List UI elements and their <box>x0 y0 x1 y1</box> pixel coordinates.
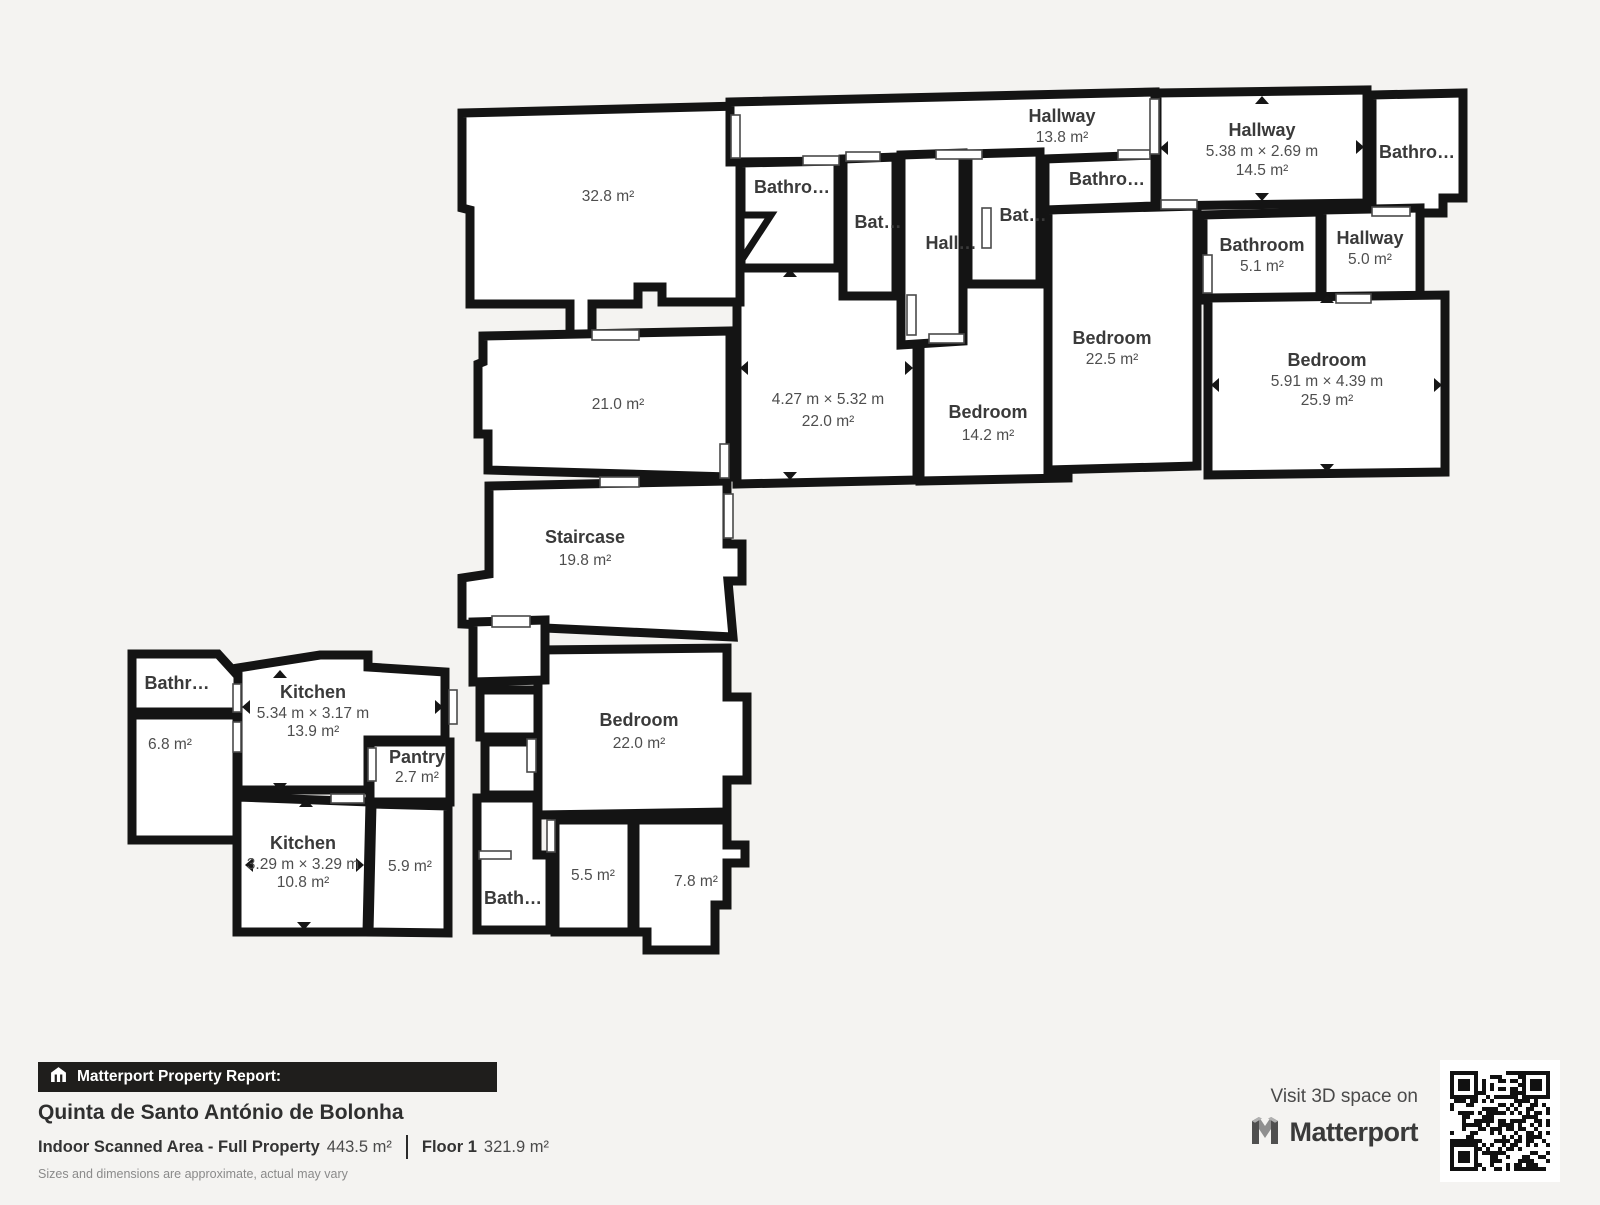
room-6-8-outline <box>132 715 237 840</box>
door <box>331 794 364 803</box>
property-name: Quinta de Santo António de Bolonha <box>38 1101 658 1125</box>
room-label: 3.29 m × 3.29 m <box>247 856 359 873</box>
room-label: Bat… <box>854 212 901 232</box>
room-bedroom-bottom-outline <box>538 648 747 815</box>
door <box>233 722 241 752</box>
room-label: 22.0 m² <box>802 413 855 430</box>
room-label: Bathr… <box>144 673 209 693</box>
room-label: 19.8 m² <box>559 552 612 569</box>
area-info-line: Indoor Scanned Area - Full Property 443.… <box>38 1135 658 1159</box>
qr-code <box>1440 1060 1560 1182</box>
room-label: 5.34 m × 3.17 m <box>257 705 369 722</box>
room-bathroom-5-1-outline <box>1203 212 1320 300</box>
door <box>1161 200 1197 209</box>
floor-value: 321.9 m² <box>484 1138 549 1157</box>
room-label: Pantry <box>389 747 445 767</box>
room-label: 4.27 m × 5.32 m <box>772 391 884 408</box>
report-footer: Matterport Property Report: Quinta de Sa… <box>38 1062 658 1181</box>
room-label: Bedroom <box>599 710 678 730</box>
room-label: 22.5 m² <box>1086 351 1139 368</box>
property-report-icon <box>50 1066 67 1088</box>
divider <box>406 1135 408 1159</box>
door <box>982 208 991 248</box>
matterport-wordmark: Matterport <box>1290 1117 1419 1148</box>
room-label: 6.8 m² <box>148 736 192 753</box>
room-label: Staircase <box>545 527 625 547</box>
room-label: Bedroom <box>948 402 1027 422</box>
room-label: Hallway <box>1228 120 1295 140</box>
door <box>1372 207 1410 216</box>
door <box>803 156 839 165</box>
room-label: Hall… <box>925 233 976 253</box>
scanned-area-label: Indoor Scanned Area - Full Property <box>38 1138 320 1157</box>
door <box>600 477 639 487</box>
door <box>479 851 511 859</box>
disclaimer-text: Sizes and dimensions are approximate, ac… <box>38 1167 658 1181</box>
door <box>547 820 555 852</box>
floor-label: Floor 1 <box>422 1138 477 1157</box>
room-label: Bath… <box>484 888 542 908</box>
room-label: 10.8 m² <box>277 874 330 891</box>
room-label: 25.9 m² <box>1301 392 1354 409</box>
door <box>233 684 241 712</box>
visit-label: Visit 3D space on <box>1249 1086 1419 1108</box>
door <box>1336 294 1371 303</box>
door <box>527 739 536 772</box>
floor-plan: 32.8 m² 21.0 m² Staircase 19.8 m² Hallwa… <box>0 0 1600 1200</box>
room-label: 7.8 m² <box>674 873 718 890</box>
room-label: Hallway <box>1336 228 1403 248</box>
room-label: 5.9 m² <box>388 858 432 875</box>
door <box>1118 150 1150 159</box>
door <box>1203 255 1212 293</box>
door <box>1150 99 1159 154</box>
door <box>724 494 733 538</box>
room-label: 5.1 m² <box>1240 258 1284 275</box>
room-label: Bedroom <box>1072 328 1151 348</box>
room-label: 5.5 m² <box>571 867 615 884</box>
room-label: 14.2 m² <box>962 427 1015 444</box>
door <box>907 295 916 335</box>
room-label: 5.38 m × 2.69 m <box>1206 143 1318 160</box>
room-label: Hallway <box>1028 106 1095 126</box>
room-label: Bathro… <box>754 177 830 197</box>
room-label: 13.9 m² <box>287 723 340 740</box>
vestibule-outline <box>480 690 538 737</box>
room-label: Bat… <box>999 205 1046 225</box>
room-label: 32.8 m² <box>582 188 635 205</box>
room-label: 22.0 m² <box>613 735 666 752</box>
room-label: 21.0 m² <box>592 396 645 413</box>
room-label: 5.0 m² <box>1348 251 1392 268</box>
room-label: Bathro… <box>1379 142 1455 162</box>
room-label: Bathroom <box>1220 235 1305 255</box>
door <box>731 115 740 158</box>
room-label: Kitchen <box>280 682 346 702</box>
vestibule-outline <box>473 620 545 682</box>
door <box>368 748 376 781</box>
door <box>936 150 982 159</box>
room-label: Kitchen <box>270 833 336 853</box>
door <box>592 330 639 340</box>
door <box>846 152 880 161</box>
door <box>492 616 530 627</box>
door <box>929 334 964 343</box>
room-label: 14.5 m² <box>1236 162 1289 179</box>
room-label: Bedroom <box>1287 350 1366 370</box>
matterport-logo-icon <box>1249 1114 1281 1151</box>
room-label: 5.91 m × 4.39 m <box>1271 373 1383 390</box>
report-bar: Matterport Property Report: <box>38 1062 497 1092</box>
room-label: 2.7 m² <box>395 769 439 786</box>
scanned-area-value: 443.5 m² <box>327 1138 392 1157</box>
door <box>449 690 457 724</box>
room-32-8-outline <box>462 106 740 336</box>
visit-3d-cta[interactable]: Visit 3D space on Matterport <box>1249 1086 1419 1151</box>
door <box>720 444 729 478</box>
matterport-floorplan-page: { "plan": { "rooms": { "living_32_8": {"… <box>0 0 1600 1200</box>
room-label: 13.8 m² <box>1036 129 1089 146</box>
report-bar-label: Matterport Property Report: <box>77 1068 281 1086</box>
room-label: Bathro… <box>1069 169 1145 189</box>
